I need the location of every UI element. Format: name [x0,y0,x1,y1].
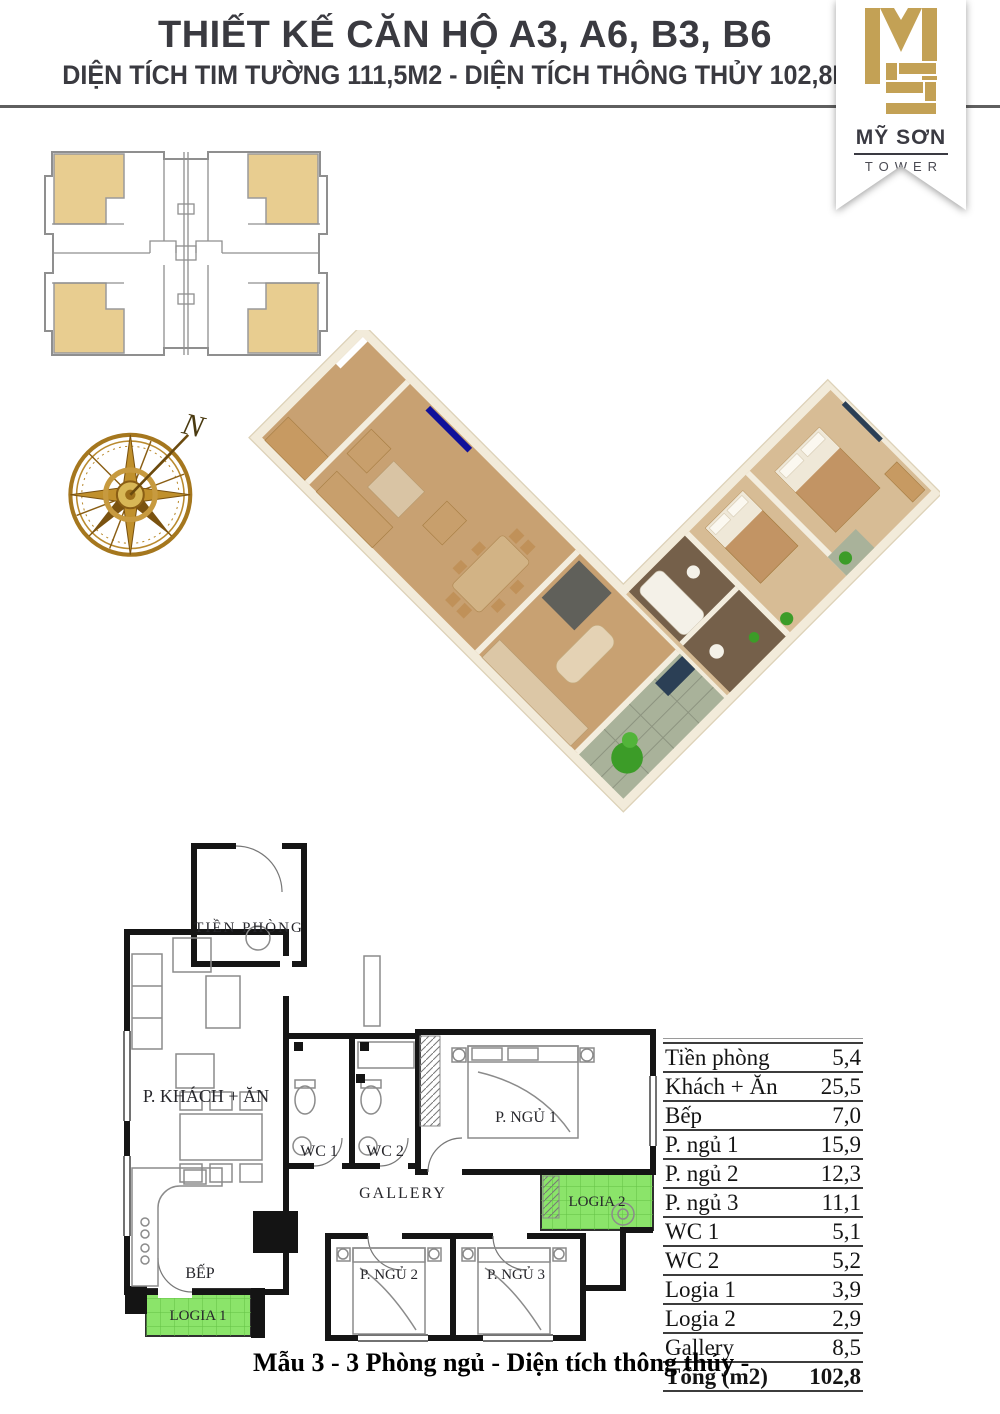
area-value-cell: 5,2 [798,1246,863,1275]
room-label-bed2: P. NGỦ 2 [360,1266,418,1283]
room-label-gallery: GALLERY [359,1185,447,1202]
brochure-page: THIẾT KẾ CĂN HỘ A3, A6, B3, B6 DIỆN TÍCH… [0,0,1000,1414]
room-name-cell: Tiền phòng [663,1043,798,1072]
room-name-cell: Bếp [663,1101,798,1130]
area-value-cell: 12,3 [798,1159,863,1188]
room-name-cell: WC 2 [663,1246,798,1275]
brand-name: MỸ SƠN [854,126,948,155]
table-row: Bếp7,0 [663,1101,863,1130]
area-value-cell: 3,9 [798,1275,863,1304]
area-value-cell: 102,8 [798,1362,863,1391]
room-name-cell: P. ngủ 1 [663,1130,798,1159]
floorplan-3d-render [240,330,940,840]
area-value-cell: 25,5 [798,1072,863,1101]
ms-monogram-icon [853,6,949,124]
room-label-wc2: WC 2 [366,1143,404,1160]
area-value-cell: 11,1 [798,1188,863,1217]
room-name-cell: WC 1 [663,1217,798,1246]
table-row: Logia 13,9 [663,1275,863,1304]
room-name-cell: Logia 2 [663,1304,798,1333]
room-label-kitchen: BẾP [185,1263,214,1282]
room-name-cell: Khách + Ăn [663,1072,798,1101]
area-value-cell: 7,0 [798,1101,863,1130]
table-row: Tiền phòng5,4 [663,1043,863,1072]
area-table: Tiền phòng5,4 Khách + Ăn25,5 Bếp7,0 P. n… [663,1038,863,1392]
room-name-cell: P. ngủ 3 [663,1188,798,1217]
area-value-cell: 15,9 [798,1130,863,1159]
area-value-cell: 5,1 [798,1217,863,1246]
ribbon-banner: MỸ SƠN TOWER [836,0,966,210]
room-label-bed3: P. NGỦ 3 [487,1266,545,1283]
north-label: N [178,408,210,445]
table-row: Logia 22,9 [663,1304,863,1333]
table-row: WC 25,2 [663,1246,863,1275]
room-label-wc1: WC 1 [300,1143,338,1160]
compass-rose: N [58,408,213,563]
plan-caption: Mẫu 3 - 3 Phòng ngủ - Diện tích thông th… [253,1348,749,1378]
room-label-hall: TIỀN PHÒNG [194,919,304,936]
living-wing-floor [262,337,678,753]
table-row: P. ngủ 212,3 [663,1159,863,1188]
table-row: WC 15,1 [663,1217,863,1246]
room-label-living: P. KHÁCH + ĂN [143,1085,269,1106]
table-row: P. ngủ 115,9 [663,1130,863,1159]
table-row: Khách + Ăn25,5 [663,1072,863,1101]
room-label-logia2: LOGIA 2 [568,1194,625,1210]
room-label-logia1: LOGIA 1 [169,1308,226,1324]
page-subtitle: DIỆN TÍCH TIM TƯỜNG 111,5M2 - DIỆN TÍCH … [62,60,867,91]
room-name-cell: Logia 1 [663,1275,798,1304]
room-label-bed1: P. NGỦ 1 [495,1107,557,1126]
area-value-cell: 5,4 [798,1043,863,1072]
floorplan-2d: TIỀN PHÒNG P. KHÁCH + ĂN WC 1 WC 2 P. NG… [118,836,668,1384]
area-value-cell: 2,9 [798,1304,863,1333]
brand-ribbon: MỸ SƠN TOWER [836,0,966,210]
brand-subname: TOWER [859,159,943,174]
area-value-cell: 8,5 [798,1333,863,1362]
room-name-cell: P. ngủ 2 [663,1159,798,1188]
table-row: P. ngủ 311,1 [663,1188,863,1217]
header: THIẾT KẾ CĂN HỘ A3, A6, B3, B6 DIỆN TÍCH… [0,12,930,91]
page-title: THIẾT KẾ CĂN HỘ A3, A6, B3, B6 [0,12,930,58]
